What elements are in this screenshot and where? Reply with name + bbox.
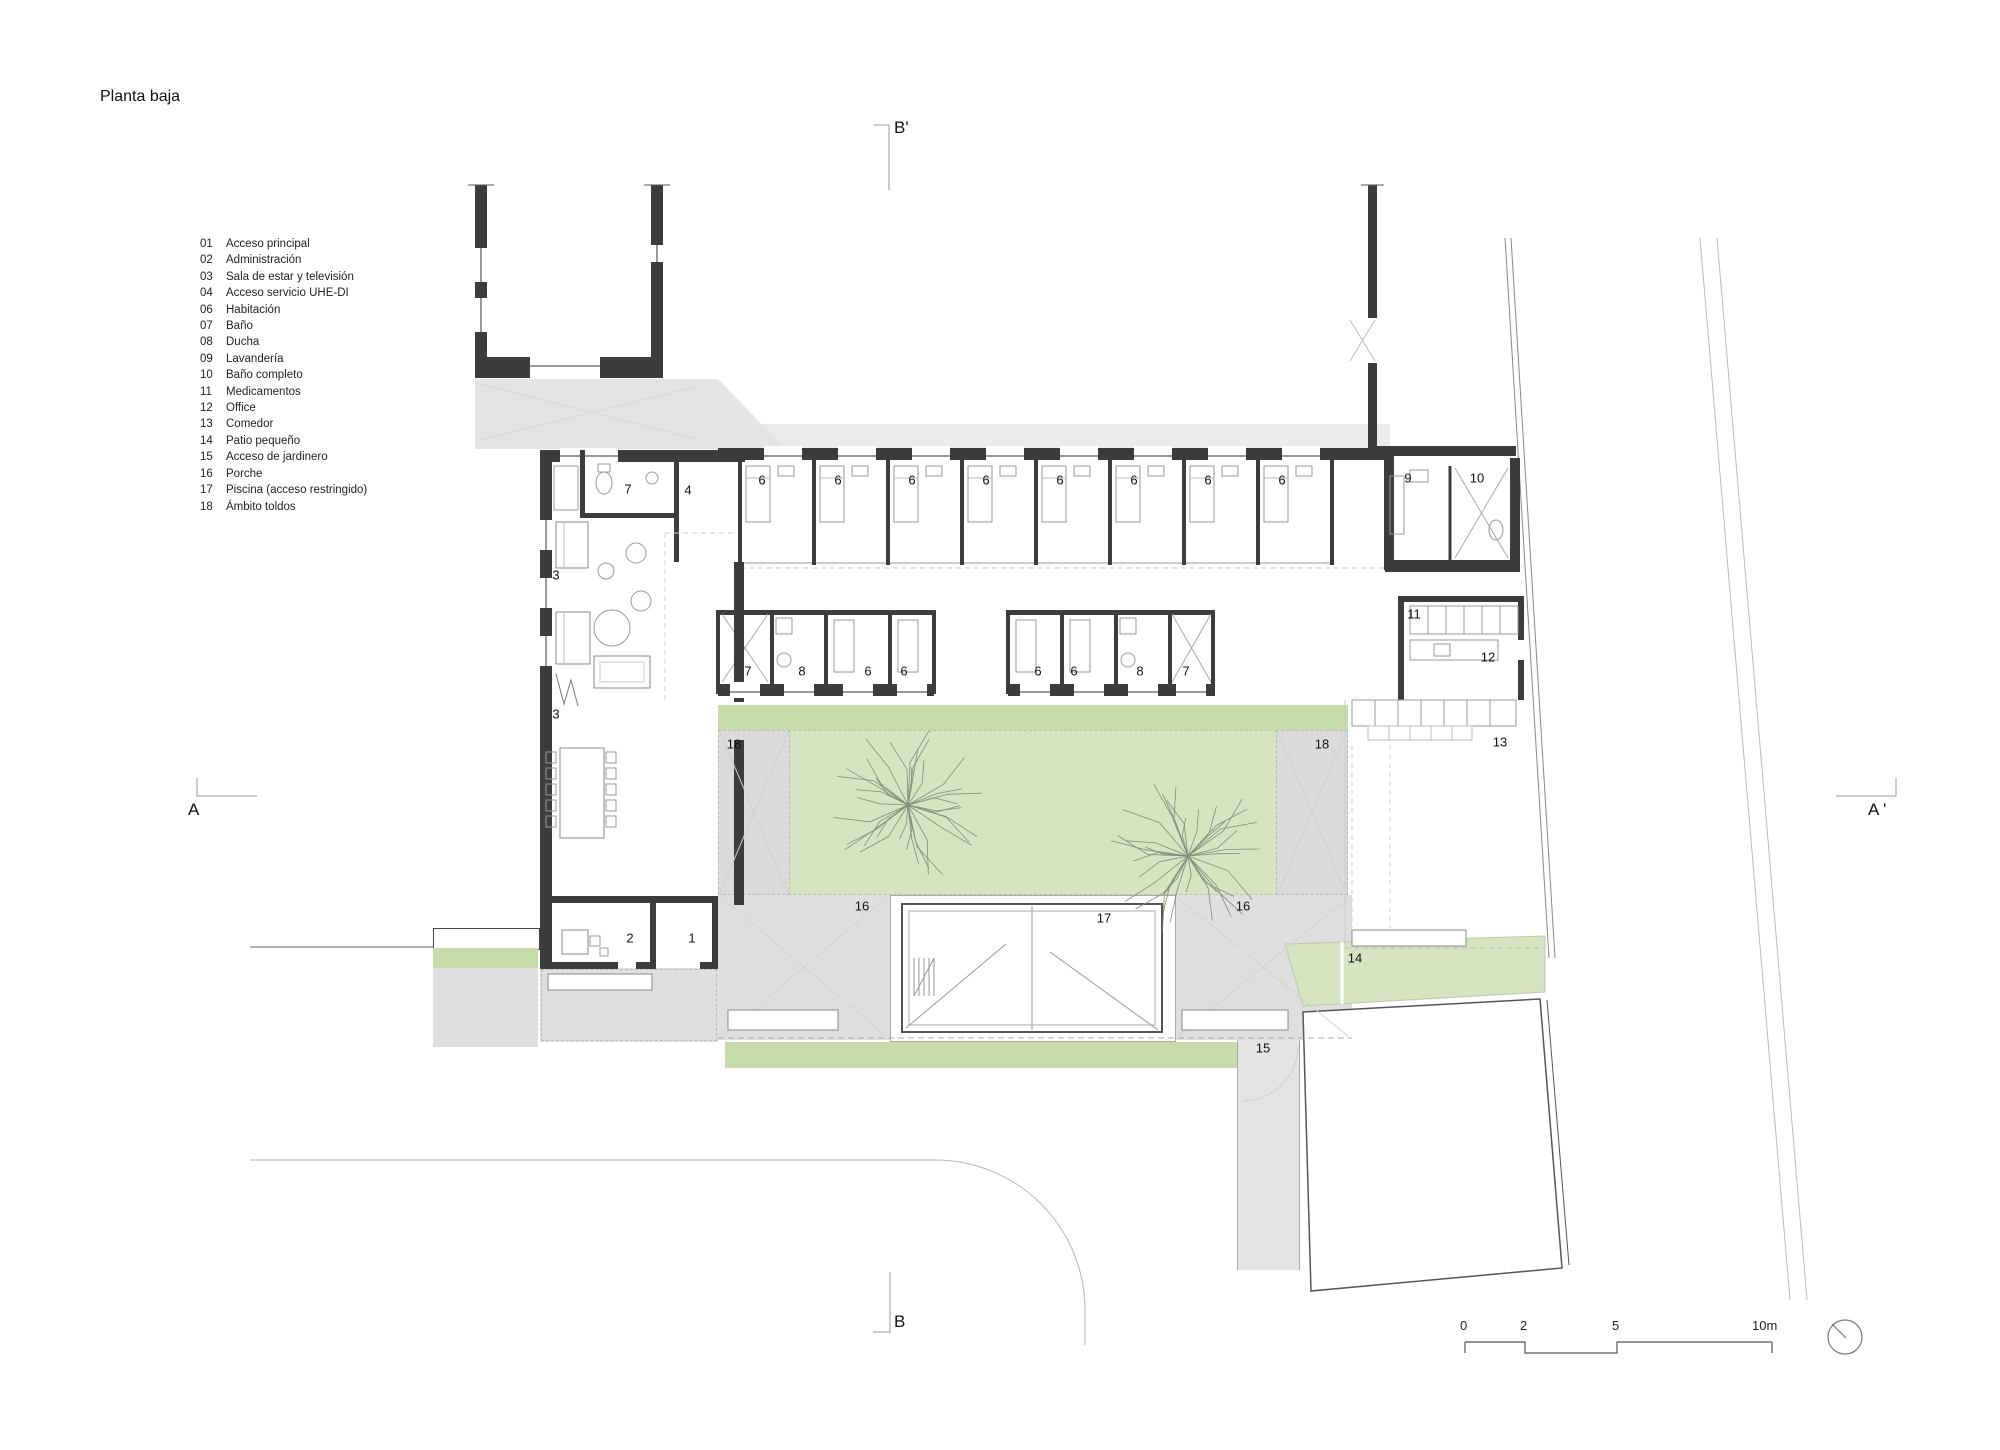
room-number-label: 13 — [1493, 735, 1507, 750]
room-number-label: 15 — [1256, 1041, 1270, 1056]
room-number-label: 11 — [1407, 607, 1421, 622]
room-number-label: 6 — [982, 473, 989, 488]
room-number-label: 2 — [626, 931, 633, 946]
room-number-label: 1 — [688, 931, 695, 946]
room-number-label: 6 — [908, 473, 915, 488]
room-number-label: 7 — [624, 482, 631, 497]
room-number-label: 16 — [1236, 899, 1250, 914]
room-number-label: 12 — [1481, 650, 1495, 665]
section-label-a-right: A ' — [1868, 800, 1886, 820]
floor-plan-sheet: Planta baja 01Acceso principal02Administ… — [0, 0, 2000, 1450]
scale-tick-label: 0 — [1460, 1318, 1467, 1333]
room-number-label: 18 — [727, 737, 741, 752]
section-label-b-top: B' — [894, 118, 909, 138]
room-number-label: 6 — [1056, 473, 1063, 488]
plan-labels: B' A A ' B 66666666910786666877433111213… — [0, 0, 2000, 1450]
room-number-label: 6 — [1070, 664, 1077, 679]
room-number-label: 8 — [1136, 664, 1143, 679]
room-number-label: 14 — [1348, 951, 1362, 966]
room-number-label: 3 — [552, 568, 559, 583]
room-number-label: 9 — [1404, 471, 1411, 486]
room-number-label: 17 — [1097, 911, 1111, 926]
room-number-label: 4 — [684, 483, 691, 498]
scale-tick-label: 10m — [1752, 1318, 1777, 1333]
room-number-label: 16 — [855, 899, 869, 914]
room-number-label: 6 — [1130, 473, 1137, 488]
room-number-label: 6 — [1278, 473, 1285, 488]
room-number-label: 6 — [834, 473, 841, 488]
room-number-label: 6 — [900, 664, 907, 679]
section-label-b-bottom: B — [894, 1312, 905, 1332]
room-number-label: 8 — [798, 664, 805, 679]
room-number-label: 7 — [1182, 664, 1189, 679]
room-number-label: 6 — [1204, 473, 1211, 488]
room-number-label: 10 — [1470, 471, 1484, 486]
room-number-label: 6 — [1034, 664, 1041, 679]
room-number-label: 6 — [864, 664, 871, 679]
room-number-label: 6 — [758, 473, 765, 488]
room-number-label: 3 — [552, 707, 559, 722]
section-label-a-left: A — [188, 800, 199, 820]
scale-tick-label: 5 — [1612, 1318, 1619, 1333]
room-number-label: 7 — [744, 664, 751, 679]
room-number-label: 18 — [1315, 737, 1329, 752]
scale-tick-label: 2 — [1520, 1318, 1527, 1333]
